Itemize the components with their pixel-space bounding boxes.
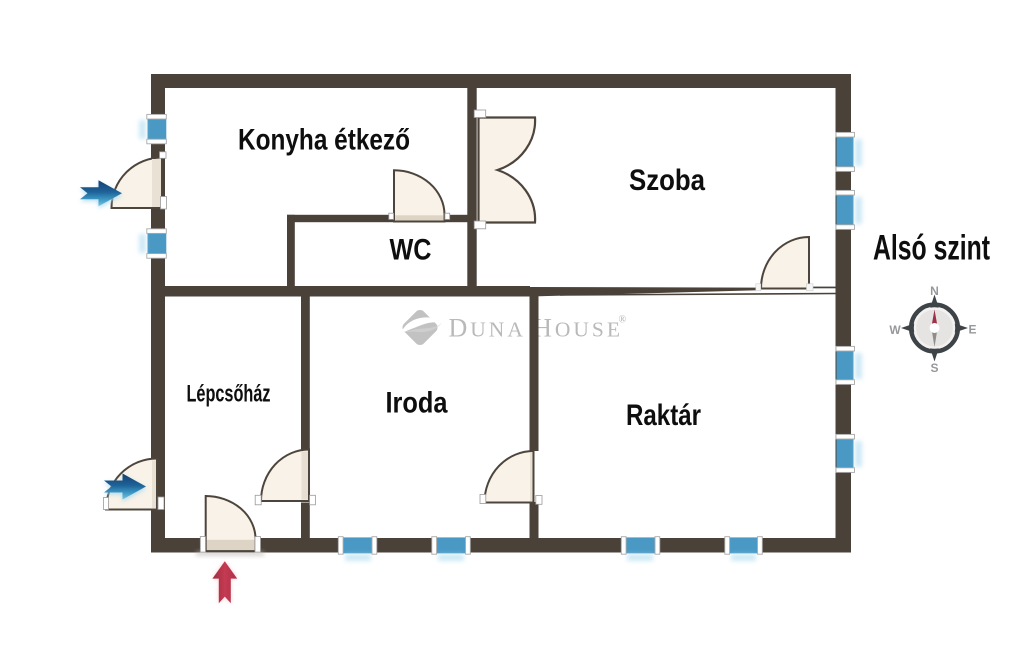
svg-text:E: E: [968, 323, 976, 337]
svg-text:WC: WC: [390, 234, 432, 267]
svg-text:Szoba: Szoba: [629, 164, 705, 197]
svg-text:Raktár: Raktár: [626, 399, 701, 432]
svg-text:Konyha étkező: Konyha étkező: [238, 124, 410, 157]
svg-text:Lépcsőház: Lépcsőház: [187, 381, 271, 408]
svg-text:N: N: [930, 284, 939, 298]
svg-text:®: ®: [619, 315, 627, 326]
svg-text:Iroda: Iroda: [386, 387, 448, 420]
svg-text:S: S: [930, 361, 938, 375]
svg-text:W: W: [889, 323, 901, 337]
svg-text:Alsó szint: Alsó szint: [873, 229, 990, 268]
